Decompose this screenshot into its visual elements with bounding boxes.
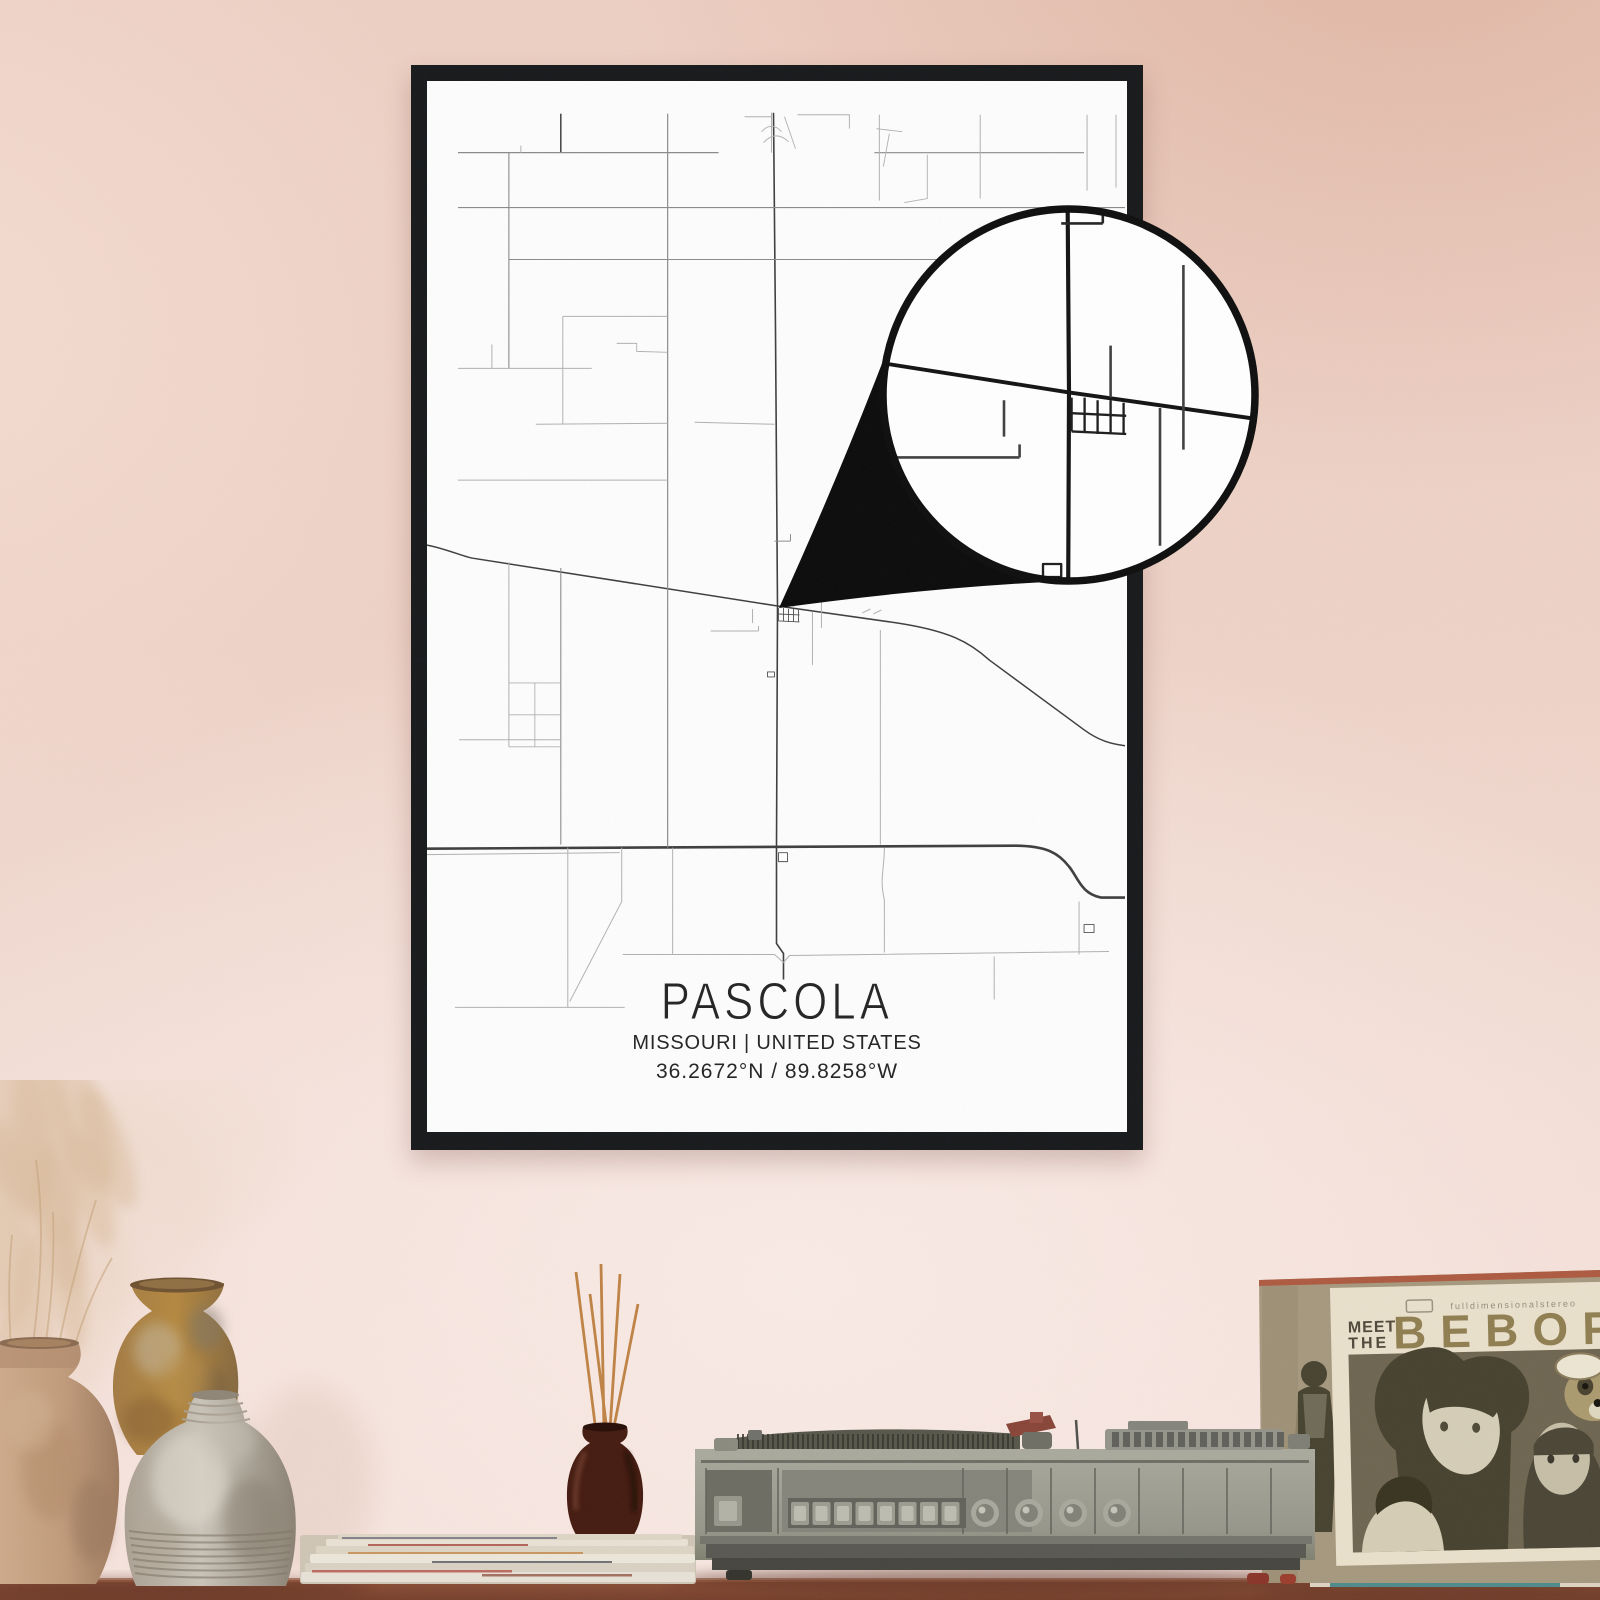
svg-text:THE: THE	[1348, 1335, 1389, 1353]
svg-text:MEET: MEET	[1348, 1319, 1397, 1337]
